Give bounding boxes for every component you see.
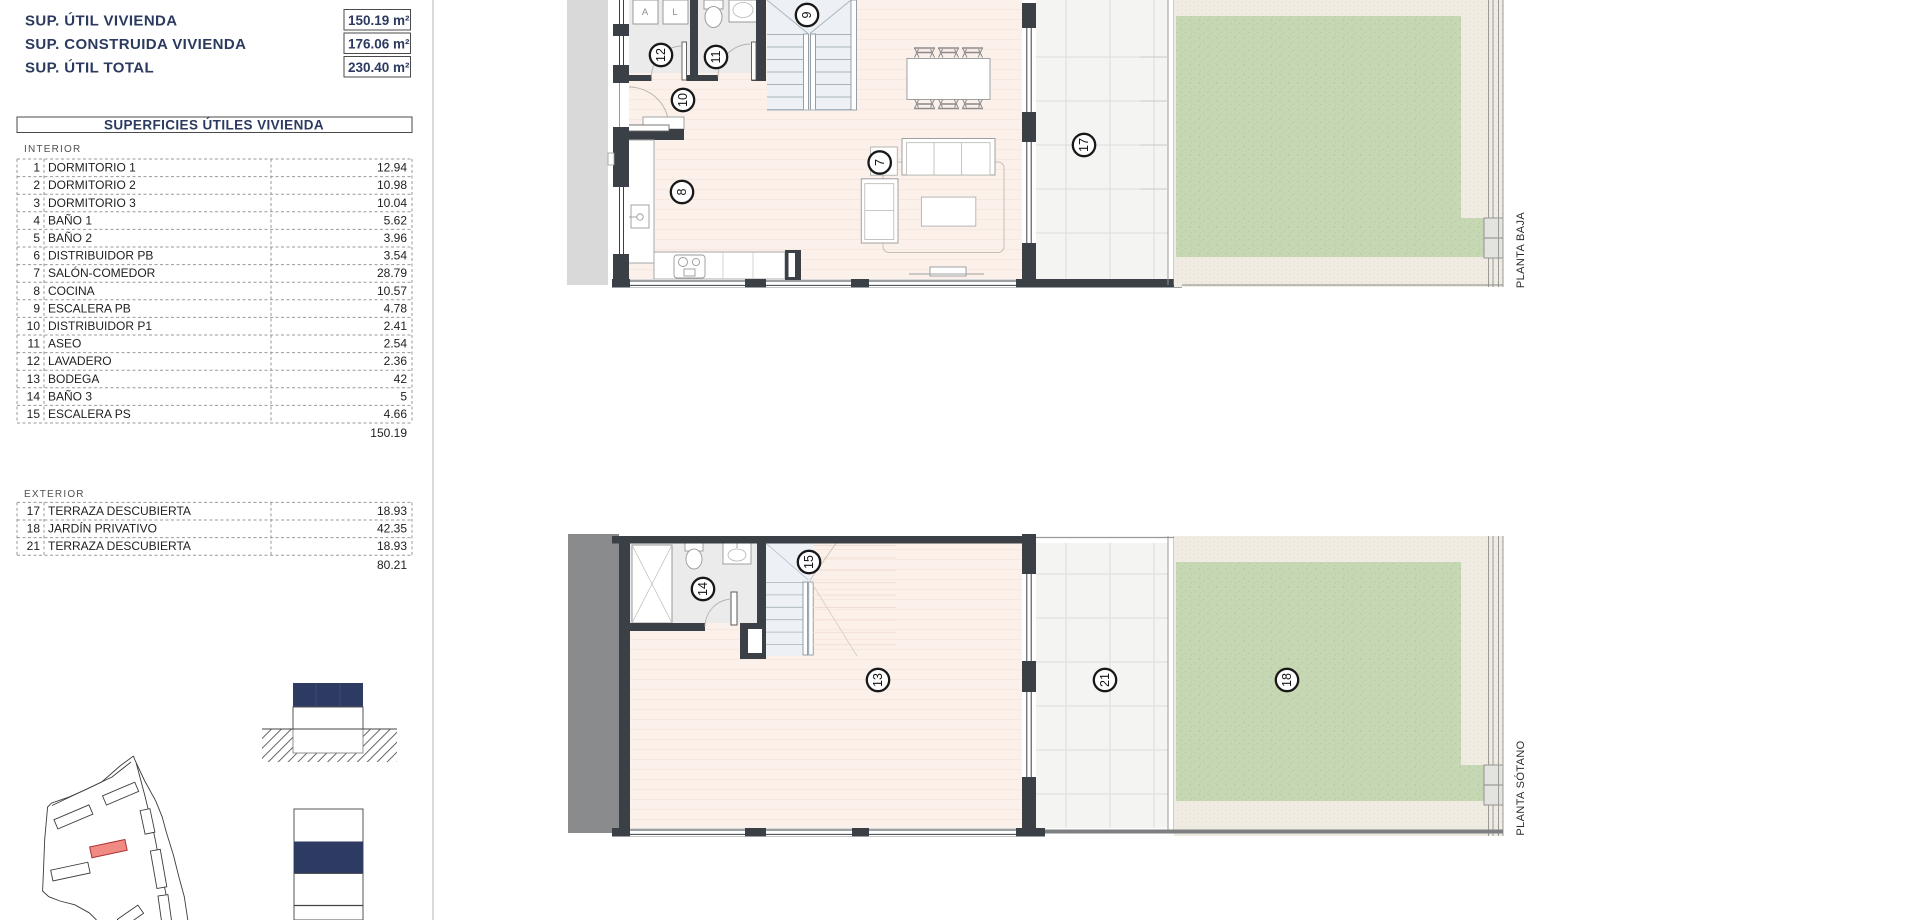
svg-text:13: 13 — [27, 372, 41, 386]
svg-text:DORMITORIO 1: DORMITORIO 1 — [48, 161, 136, 175]
svg-text:2.41: 2.41 — [384, 319, 408, 333]
svg-text:SUPERFICIES ÚTILES VIVIENDA: SUPERFICIES ÚTILES VIVIENDA — [104, 118, 324, 133]
svg-text:5: 5 — [400, 389, 407, 403]
svg-text:150.19: 150.19 — [370, 426, 407, 440]
svg-text:10: 10 — [27, 319, 41, 333]
svg-text:SUP. CONSTRUIDA VIVIENDA: SUP. CONSTRUIDA VIVIENDA — [25, 36, 246, 53]
svg-text:5: 5 — [33, 231, 40, 245]
svg-text:11: 11 — [28, 337, 41, 351]
svg-text:SUP. ÚTIL VIVIENDA: SUP. ÚTIL VIVIENDA — [25, 12, 178, 30]
svg-text:10.04: 10.04 — [377, 196, 407, 210]
svg-text:L: L — [672, 7, 677, 18]
svg-text:INTERIOR: INTERIOR — [24, 144, 81, 155]
svg-text:14: 14 — [27, 389, 41, 403]
svg-text:3.54: 3.54 — [384, 249, 408, 263]
svg-text:14: 14 — [696, 582, 710, 596]
svg-text:42.35: 42.35 — [377, 522, 407, 536]
svg-text:ASEO: ASEO — [48, 337, 81, 351]
svg-text:42: 42 — [394, 372, 408, 386]
svg-text:9: 9 — [800, 11, 814, 18]
svg-text:2.54: 2.54 — [384, 337, 408, 351]
svg-text:28.79: 28.79 — [377, 266, 407, 280]
svg-text:10.57: 10.57 — [377, 284, 407, 298]
svg-text:18: 18 — [27, 522, 41, 536]
svg-text:80.21: 80.21 — [377, 558, 407, 572]
svg-text:7: 7 — [33, 266, 40, 280]
svg-text:11: 11 — [709, 50, 723, 63]
svg-text:EXTERIOR: EXTERIOR — [24, 489, 85, 500]
svg-text:PLANTA BAJA: PLANTA BAJA — [1515, 212, 1527, 289]
svg-text:BODEGA: BODEGA — [48, 372, 99, 386]
svg-text:BAÑO 2: BAÑO 2 — [48, 231, 92, 245]
svg-text:12.94: 12.94 — [377, 161, 407, 175]
svg-text:SUP. ÚTIL TOTAL: SUP. ÚTIL TOTAL — [25, 59, 154, 77]
svg-text:PLANTA SÓTANO: PLANTA SÓTANO — [1514, 740, 1527, 835]
svg-text:SALÓN-COMEDOR: SALÓN-COMEDOR — [48, 265, 156, 280]
svg-text:1: 1 — [33, 161, 40, 175]
svg-text:2.36: 2.36 — [384, 354, 408, 368]
svg-text:BAÑO 1: BAÑO 1 — [48, 213, 92, 227]
svg-text:LAVADERO: LAVADERO — [48, 354, 112, 368]
svg-text:3.96: 3.96 — [384, 231, 408, 245]
svg-text:DORMITORIO 2: DORMITORIO 2 — [48, 178, 136, 192]
svg-text:12: 12 — [27, 354, 41, 368]
svg-text:18.93: 18.93 — [377, 504, 407, 518]
svg-text:12: 12 — [654, 48, 668, 62]
svg-text:BAÑO 3: BAÑO 3 — [48, 389, 92, 403]
svg-text:5.62: 5.62 — [384, 213, 408, 227]
svg-text:A: A — [642, 7, 649, 18]
svg-text:DISTRIBUIDOR PB: DISTRIBUIDOR PB — [48, 249, 153, 263]
svg-text:17: 17 — [27, 504, 41, 518]
svg-text:10: 10 — [676, 93, 690, 107]
svg-text:DORMITORIO 3: DORMITORIO 3 — [48, 196, 136, 210]
svg-text:JARDÍN PRIVATIVO: JARDÍN PRIVATIVO — [48, 521, 157, 536]
svg-text:COCINA: COCINA — [48, 284, 95, 298]
svg-text:150.19 m²: 150.19 m² — [348, 13, 410, 28]
svg-text:6: 6 — [33, 249, 40, 263]
svg-text:4.78: 4.78 — [384, 301, 408, 315]
svg-text:8: 8 — [675, 188, 689, 195]
svg-text:18.93: 18.93 — [377, 539, 407, 553]
svg-text:15: 15 — [27, 407, 41, 421]
svg-text:18: 18 — [1280, 673, 1294, 687]
svg-text:230.40 m²: 230.40 m² — [348, 60, 410, 75]
svg-text:9: 9 — [33, 301, 40, 315]
svg-text:TERRAZA DESCUBIERTA: TERRAZA DESCUBIERTA — [48, 504, 191, 518]
svg-text:15: 15 — [802, 555, 816, 569]
svg-text:10.98: 10.98 — [377, 178, 407, 192]
svg-text:21: 21 — [27, 539, 41, 553]
svg-text:ESCALERA PS: ESCALERA PS — [48, 407, 131, 421]
svg-text:13: 13 — [871, 673, 885, 687]
svg-text:176.06 m²: 176.06 m² — [348, 37, 410, 52]
svg-text:7: 7 — [873, 159, 887, 166]
svg-text:TERRAZA DESCUBIERTA: TERRAZA DESCUBIERTA — [48, 539, 191, 553]
svg-text:4: 4 — [33, 213, 40, 227]
svg-text:17: 17 — [1077, 138, 1091, 152]
svg-text:8: 8 — [33, 284, 40, 298]
svg-text:DISTRIBUIDOR P1: DISTRIBUIDOR P1 — [48, 319, 152, 333]
svg-text:3: 3 — [33, 196, 40, 210]
svg-text:21: 21 — [1098, 673, 1112, 687]
svg-text:4.66: 4.66 — [384, 407, 408, 421]
svg-text:ESCALERA PB: ESCALERA PB — [48, 301, 131, 315]
svg-text:2: 2 — [33, 178, 40, 192]
